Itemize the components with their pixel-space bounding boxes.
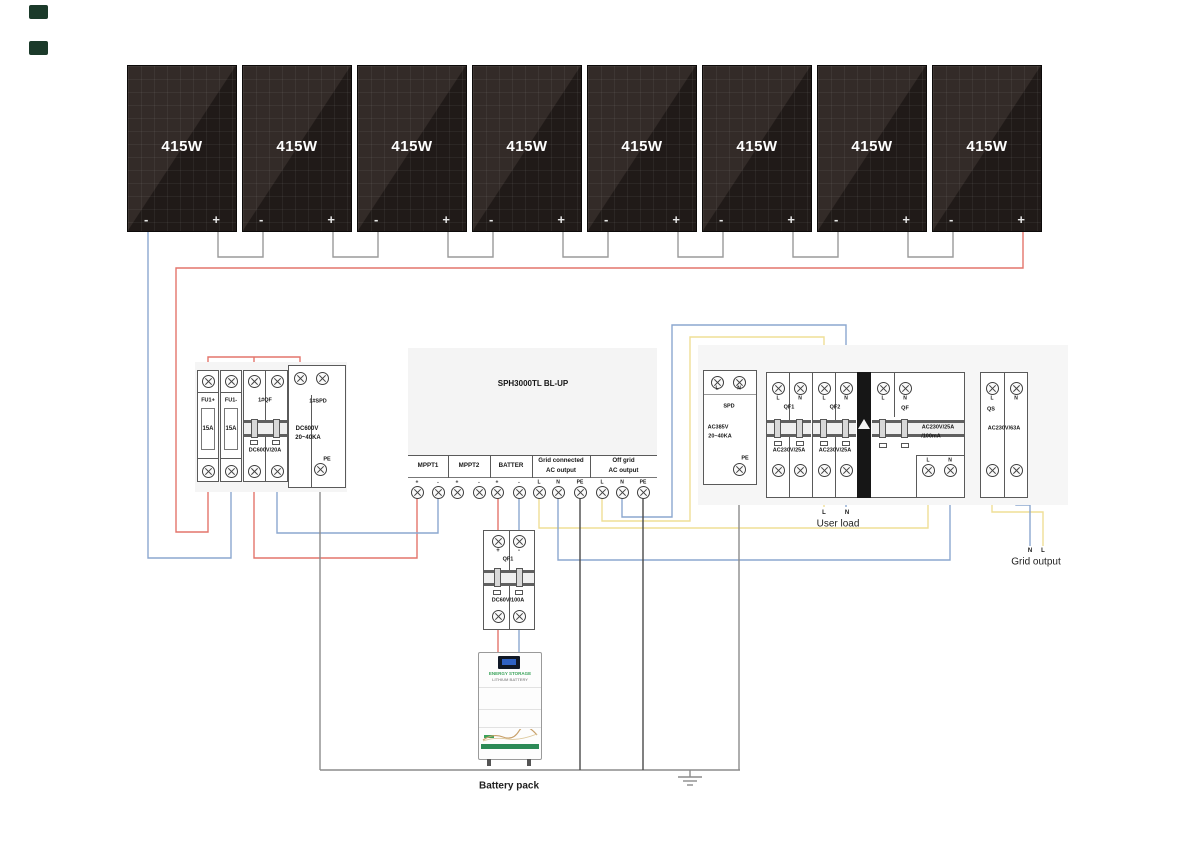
qf2-n-label: N (844, 397, 848, 402)
panel-plus-terminal: + (672, 212, 680, 227)
screw-terminal (271, 375, 284, 388)
panel-minus-terminal: - (374, 212, 378, 227)
inverter-title-label: SPH3000TL BL-UP (498, 380, 569, 388)
inverter-terminal-label: - (478, 481, 480, 486)
qf_rcd-rating2-label: /100mA (921, 434, 941, 440)
battery-pack: ENERGY STORAGE LITHIUM BATTERY (478, 652, 542, 760)
combiner-fuse2-label-label: FU1- (225, 398, 237, 404)
corner-mark (29, 41, 48, 55)
wire (448, 230, 493, 257)
panel-plus-terminal: + (557, 212, 565, 227)
inverter-section-label: MPPT1 (418, 463, 439, 469)
inverter-terminal-label: L (537, 481, 540, 486)
ac_spd-line2-label: 20~40KA (708, 434, 731, 440)
solar-panel: 415W-+ (587, 65, 697, 232)
battery-display (498, 656, 520, 669)
inverter-terminal-label: L (600, 481, 603, 486)
user-load-label: User load (817, 519, 860, 530)
wire (333, 230, 378, 257)
labels-grid_output-n-label: N (1028, 548, 1032, 554)
screw-terminal (794, 464, 807, 477)
inverter-terminal-label: + (456, 481, 459, 486)
solar-panel: 415W-+ (472, 65, 582, 232)
battery-graphic (481, 729, 539, 743)
screw-terminal (432, 486, 445, 499)
ac_spd-l-label: L (715, 386, 718, 391)
ac_spd-label-label: SPD (723, 404, 734, 410)
panel-plus-terminal: + (327, 212, 335, 227)
screw-terminal (492, 535, 505, 548)
solar-panel: 415W-+ (817, 65, 927, 232)
screw-terminal (574, 486, 587, 499)
corner-mark (29, 5, 48, 19)
combiner-fuse1-label-label: FU1+ (201, 398, 215, 404)
screw-terminal (772, 464, 785, 477)
test-triangle-icon (858, 419, 870, 429)
qf2-rating-label: AC230V/25A (819, 448, 851, 454)
panel-wattage: 415W (933, 138, 1041, 155)
screw-terminal (1010, 382, 1023, 395)
solar-panel: 415W-+ (357, 65, 467, 232)
battery_breaker-label-label: QF1 (503, 557, 514, 563)
screw-terminal (314, 463, 327, 476)
qs-rating-label: AC230V/63A (988, 426, 1020, 432)
solar-panel: 415W-+ (702, 65, 812, 232)
panel-plus-terminal: + (212, 212, 220, 227)
screw-terminal (552, 486, 565, 499)
screw-terminal (794, 382, 807, 395)
wire (793, 230, 838, 257)
inverter-terminal-label: + (496, 481, 499, 486)
panel-plus-terminal: + (442, 212, 450, 227)
combiner-spd-line2-label: 20~40KA (295, 435, 321, 441)
battery-pack-caption: Battery pack (479, 781, 539, 792)
screw-terminal (596, 486, 609, 499)
screw-terminal (411, 486, 424, 499)
combiner-breaker-label-label: 1#QF (258, 398, 272, 404)
inverter-terminal-label: PE (640, 481, 647, 486)
combiner-fuse1-rating-label: 15A (202, 426, 213, 432)
labels-user_load-n-label: N (845, 510, 849, 516)
screw-terminal (513, 610, 526, 623)
solar-panel: 415W-+ (932, 65, 1042, 232)
screw-terminal (533, 486, 546, 499)
qf_rcd-bottom_n-label: N (948, 459, 952, 464)
screw-terminal (944, 464, 957, 477)
screw-terminal (877, 382, 890, 395)
inverter-section-label: Off grid (612, 458, 634, 464)
screw-terminal (840, 464, 853, 477)
inverter-body (408, 348, 657, 455)
grid-output-label: Grid output (1011, 557, 1060, 568)
panel-plus-terminal: + (787, 212, 795, 227)
combiner-breaker-rating-label: DC600V/20A (249, 448, 281, 454)
combiner-spd-pe-label: PE (323, 457, 330, 463)
screw-terminal (202, 375, 215, 388)
qs-n-label: N (1014, 397, 1018, 402)
qf1-label-label: QF1 (784, 405, 795, 411)
panel-plus-terminal: + (902, 212, 910, 227)
qf_rcd-label-label: QF (901, 406, 909, 412)
qf2-l-label: L (822, 397, 825, 402)
screw-terminal (271, 465, 284, 478)
screw-terminal (733, 463, 746, 476)
inverter-section-label: Grid connected (538, 458, 583, 464)
screw-terminal (922, 464, 935, 477)
solar-panel: 415W-+ (127, 65, 237, 232)
screw-terminal (202, 465, 215, 478)
screw-terminal (986, 464, 999, 477)
inverter-section-label: MPPT2 (459, 463, 480, 469)
solar-wiring-diagram: 415W-+415W-+415W-+415W-+415W-+415W-+415W… (0, 0, 1200, 846)
combiner-fuse2-rating-label: 15A (225, 426, 236, 432)
battery_breaker-plus-label: + (496, 548, 500, 554)
panel-minus-terminal: - (144, 212, 148, 227)
wire (908, 230, 953, 257)
battery-brand: ENERGY STORAGE (489, 672, 531, 677)
screw-terminal (818, 382, 831, 395)
screw-terminal (225, 465, 238, 478)
qf_rcd-l-label: L (881, 397, 884, 402)
ac_spd-pe-label: PE (741, 456, 748, 462)
qs-label-label: QS (987, 407, 995, 413)
qf2-label-label: QF2 (830, 405, 841, 411)
labels-user_load-l-label: L (822, 510, 826, 516)
screw-terminal (294, 372, 307, 385)
ac_spd-line1-label: AC385V (708, 425, 729, 431)
panel-wattage: 415W (243, 138, 351, 155)
battery_breaker-minus-label: - (518, 548, 520, 554)
combiner-spd-label-label: 1#SPD (309, 399, 326, 405)
qf_rcd-bottom_l-label: L (926, 459, 929, 464)
qf1-n-label: N (798, 397, 802, 402)
inverter-section-label: AC output (546, 467, 576, 473)
wire (563, 230, 608, 257)
screw-terminal (491, 486, 504, 499)
screw-terminal (513, 535, 526, 548)
qf_rcd-n-label: N (903, 397, 907, 402)
panel-minus-terminal: - (834, 212, 838, 227)
screw-terminal (492, 610, 505, 623)
labels-grid_output-l-label: L (1041, 548, 1045, 554)
screw-terminal (818, 464, 831, 477)
panel-wattage: 415W (818, 138, 926, 155)
screw-terminal (248, 465, 261, 478)
wire (218, 230, 263, 257)
screw-terminal (316, 372, 329, 385)
inverter-terminal-label: + (416, 481, 419, 486)
screw-terminal (451, 486, 464, 499)
inverter-terminal-label: - (518, 481, 520, 486)
inverter-terminal-label: N (556, 481, 560, 486)
screw-terminal (248, 375, 261, 388)
panel-minus-terminal: - (489, 212, 493, 227)
battery_breaker-rating-label: DC60V/100A (492, 598, 524, 604)
inverter-section-label: BATTER (499, 463, 524, 469)
panel-wattage: 415W (588, 138, 696, 155)
screw-terminal (986, 382, 999, 395)
filler-module (857, 372, 871, 498)
qf1-rating-label: AC230V/25A (773, 448, 805, 454)
inverter-terminal-label: N (620, 481, 624, 486)
screw-terminal (473, 486, 486, 499)
battery-subtitle: LITHIUM BATTERY (492, 678, 528, 682)
inverter-terminal-label: - (437, 481, 439, 486)
screw-terminal (899, 382, 912, 395)
screw-terminal (1010, 464, 1023, 477)
qf_rcd-rating1-label: AC230V/25A (922, 425, 954, 431)
solar-panel: 415W-+ (242, 65, 352, 232)
panel-wattage: 415W (703, 138, 811, 155)
screw-terminal (513, 486, 526, 499)
screw-terminal (225, 375, 238, 388)
panel-minus-terminal: - (949, 212, 953, 227)
qs-l-label: L (990, 397, 993, 402)
screw-terminal (616, 486, 629, 499)
qf1-l-label: L (776, 397, 779, 402)
panel-wattage: 415W (358, 138, 466, 155)
panel-wattage: 415W (128, 138, 236, 155)
inverter-section-label: AC output (609, 467, 639, 473)
wire (678, 230, 723, 257)
screw-terminal (840, 382, 853, 395)
screw-terminal (637, 486, 650, 499)
panel-minus-terminal: - (604, 212, 608, 227)
panel-minus-terminal: - (719, 212, 723, 227)
combiner-spd-line1-label: DC600V (296, 426, 319, 432)
ac_spd-n-label: N (737, 386, 741, 391)
panel-wattage: 415W (473, 138, 581, 155)
panel-minus-terminal: - (259, 212, 263, 227)
panel-plus-terminal: + (1017, 212, 1025, 227)
inverter-terminal-label: PE (577, 481, 584, 486)
screw-terminal (772, 382, 785, 395)
